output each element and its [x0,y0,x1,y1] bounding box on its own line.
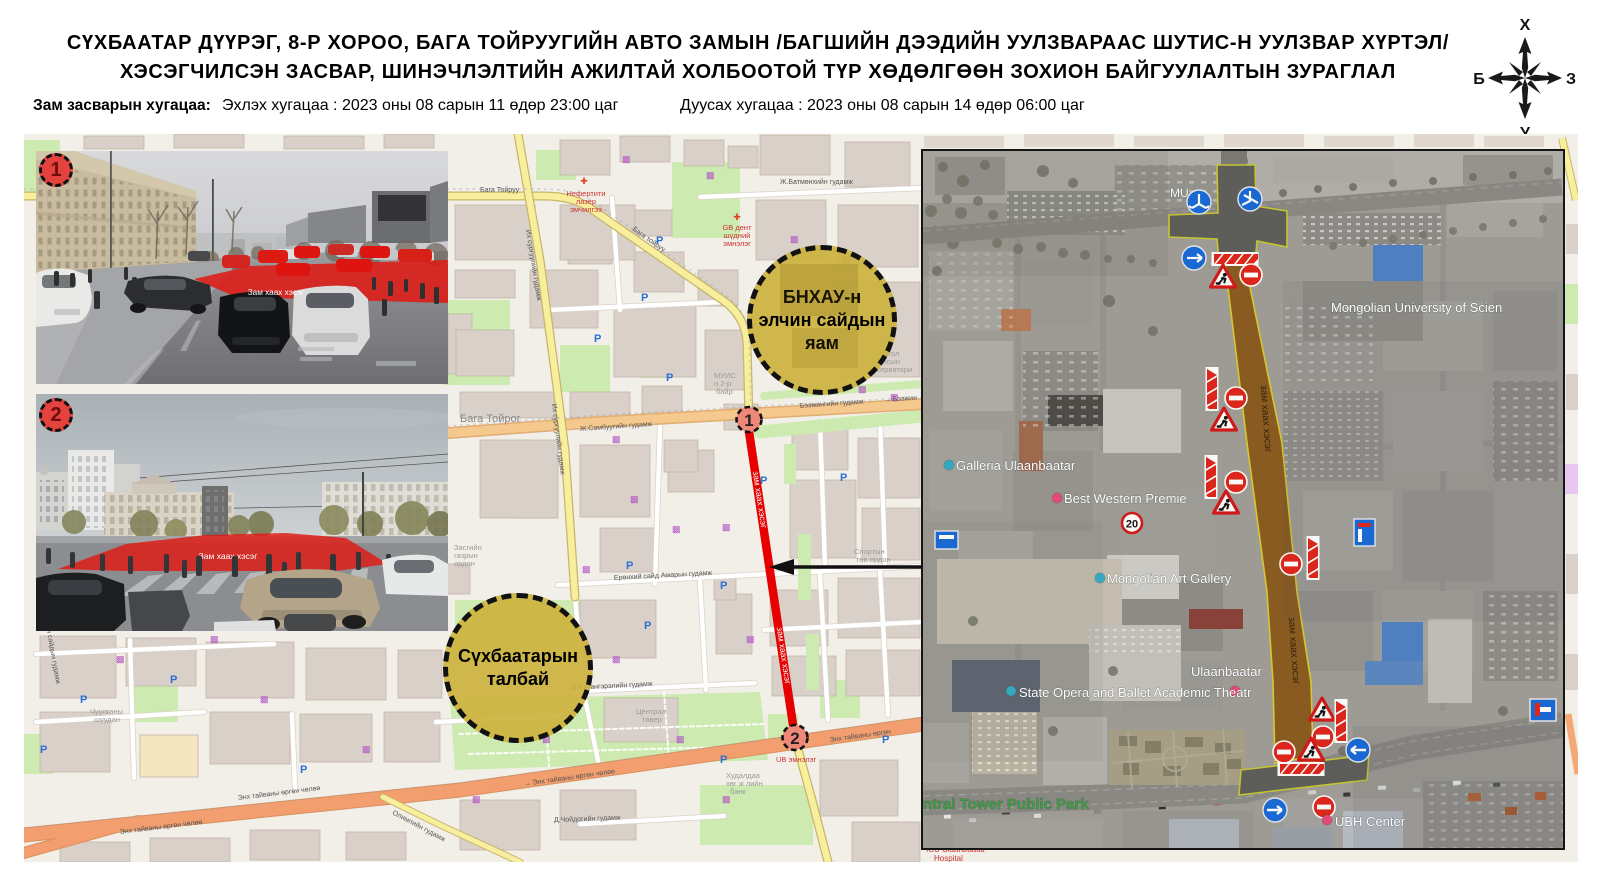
svg-text:Hospital: Hospital [934,854,963,862]
svg-text:Best Western Premie: Best Western Premie [1064,491,1187,506]
svg-text:▩: ▩ [706,170,715,180]
svg-text:✚: ✚ [580,176,588,186]
svg-text:▩: ▩ [672,524,681,534]
svg-text:▩: ▩ [722,522,731,532]
svg-text:эмнэлэг: эмнэлэг [723,239,751,248]
svg-text:Galleria Ulaanbaatar: Galleria Ulaanbaatar [956,458,1076,473]
svg-text:ордон: ордон [454,559,475,568]
svg-text:Mongolian Art Gallery: Mongolian Art Gallery [1107,571,1232,586]
svg-text:1: 1 [744,411,753,430]
svg-text:Бага Тойруу: Бага Тойруу [480,186,520,194]
svg-text:▩: ▩ [746,634,755,644]
svg-text:P: P [170,674,177,686]
svg-text:төв ордон: төв ордон [856,555,891,564]
svg-text:P: P [300,764,307,776]
svg-text:Бага Тойрог: Бага Тойрог [460,413,521,425]
svg-text:Зам хаах хэсэг: Зам хаах хэсэг [199,551,258,561]
svg-text:эмчилгээ: эмчилгээ [570,205,602,214]
svg-text:▩: ▩ [210,634,219,644]
svg-text:▩: ▩ [622,154,631,164]
svg-text:банк: банк [730,787,746,796]
svg-text:UBH Center: UBH Center [1335,814,1406,829]
svg-text:▩: ▩ [790,234,799,244]
svg-text:▩: ▩ [630,494,639,504]
svg-text:▩: ▩ [612,654,621,664]
svg-text:шуудан: шуудан [94,715,120,724]
svg-text:ntral Tower Public Park: ntral Tower Public Park [923,796,1089,813]
svg-text:Х: Х [1520,17,1531,34]
svg-text:P: P [720,754,727,766]
svg-text:▩: ▩ [858,384,867,394]
svg-text:З: З [1566,71,1576,88]
svg-text:Mongolian University of Scien: Mongolian University of Scien [1331,300,1502,315]
svg-text:тавер: тавер [642,715,662,724]
svg-text:Ж.Батмөнхийн гудамж: Ж.Батмөнхийн гудамж [780,178,853,186]
svg-text:P: P [594,333,601,345]
svg-text:▩: ▩ [472,794,481,804]
svg-text:▩: ▩ [612,434,621,444]
svg-text:▩: ▩ [362,744,371,754]
svg-text:P: P [80,694,87,706]
svg-text:P: P [666,372,673,384]
svg-text:MU: MU [1170,186,1189,200]
svg-text:байр: байр [716,387,733,396]
svg-text:▩: ▩ [582,564,591,574]
svg-text:▩: ▩ [116,654,125,664]
svg-text:P: P [40,744,47,756]
svg-text:UB эмнэлэг: UB эмнэлэг [776,755,816,764]
svg-text:▩: ▩ [260,694,269,704]
svg-text:P: P [626,560,633,572]
svg-text:Зам хаах хэсэг: Зам хаах хэсэг [248,288,305,297]
svg-text:Б: Б [1473,71,1485,88]
svg-text:Ulaanbaatar: Ulaanbaatar [1191,664,1262,679]
svg-text:P: P [644,620,651,632]
svg-text:P: P [641,292,648,304]
svg-text:✚: ✚ [733,212,741,222]
svg-text:State Opera and Ballet Academi: State Opera and Ballet Academic Theatr [1019,685,1252,700]
svg-text:P: P [840,472,847,484]
svg-text:2: 2 [790,729,799,748]
svg-text:P: P [720,580,727,592]
svg-text:▩: ▩ [676,734,685,744]
